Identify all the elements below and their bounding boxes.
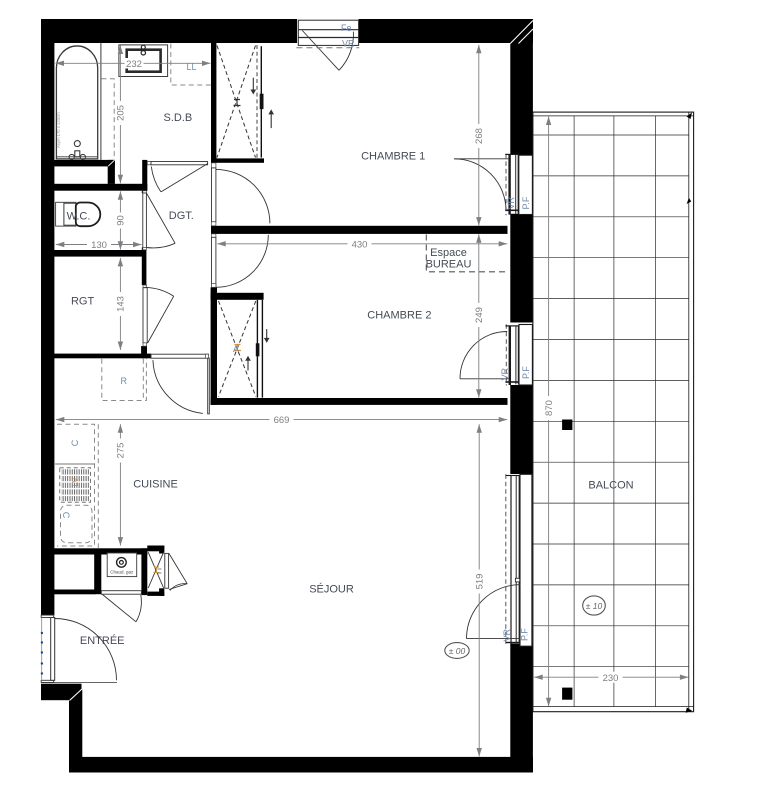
svg-text:P.F: P.F	[521, 196, 531, 209]
svg-text:VR: VR	[342, 39, 355, 49]
svg-text:Asym 170 x 120cm: Asym 170 x 120cm	[56, 112, 61, 148]
svg-text:268: 268	[474, 128, 485, 144]
svg-text:519: 519	[475, 574, 486, 590]
svg-text:205: 205	[116, 105, 127, 121]
svg-text:130: 130	[91, 240, 107, 251]
svg-text:R: R	[121, 376, 128, 386]
svg-text:BALCON: BALCON	[588, 480, 633, 492]
svg-text:143: 143	[116, 296, 127, 312]
svg-text:± 00: ± 00	[449, 646, 466, 656]
svg-text:LV: LV	[71, 477, 80, 487]
svg-text:W.C.: W.C.	[67, 211, 91, 223]
svg-text:VR: VR	[506, 196, 516, 209]
svg-text:BUREAU: BUREAU	[426, 259, 472, 271]
svg-text:RGT: RGT	[71, 295, 95, 307]
svg-text:Chaud. gaz: Chaud. gaz	[110, 570, 134, 575]
svg-text:275: 275	[116, 443, 127, 459]
svg-text:249: 249	[474, 307, 485, 323]
svg-text:CHAMBRE 2: CHAMBRE 2	[367, 310, 431, 322]
svg-text:VR: VR	[500, 367, 510, 380]
svg-text:Espace: Espace	[430, 247, 467, 259]
svg-text:A: A	[233, 344, 239, 354]
svg-text:P.F: P.F	[520, 628, 530, 641]
svg-text:± 10: ± 10	[586, 601, 603, 611]
svg-text:C: C	[61, 512, 71, 519]
svg-text:870: 870	[544, 400, 555, 416]
svg-text:SÉJOUR: SÉJOUR	[309, 583, 354, 596]
svg-text:P.F: P.F	[521, 366, 531, 379]
svg-text:Fe: Fe	[341, 23, 352, 33]
svg-text:VR: VR	[502, 628, 512, 641]
svg-text:DGT.: DGT.	[169, 210, 194, 222]
svg-text:430: 430	[352, 240, 368, 251]
svg-text:CHAMBRE 1: CHAMBRE 1	[361, 151, 425, 163]
svg-text:90: 90	[116, 215, 127, 226]
svg-text:CUISINE: CUISINE	[133, 479, 178, 491]
svg-text:S.D.B: S.D.B	[164, 112, 193, 124]
svg-text:C: C	[70, 439, 80, 446]
svg-text:669: 669	[274, 415, 290, 426]
svg-text:232: 232	[126, 59, 142, 70]
svg-text:230: 230	[603, 673, 619, 684]
